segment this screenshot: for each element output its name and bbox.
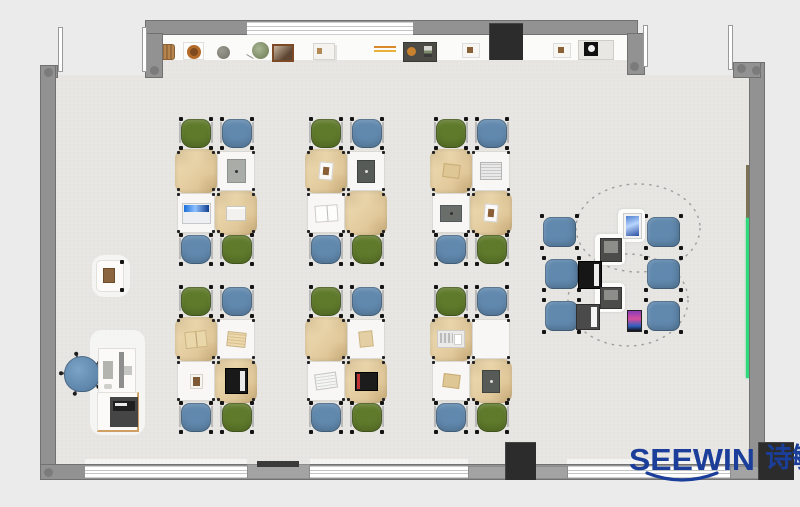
cabinet-top-wall xyxy=(489,23,523,60)
chair-foot xyxy=(220,401,224,405)
desk-foot xyxy=(177,230,180,233)
book-tan-icon xyxy=(442,373,461,389)
desk-foot xyxy=(217,356,220,359)
chair-foot xyxy=(475,401,479,405)
tablet-white-icon xyxy=(623,213,642,239)
pod-4-desk-4 xyxy=(217,361,255,401)
desk-foot xyxy=(432,356,435,359)
desk-foot xyxy=(347,361,350,364)
desk-foot xyxy=(212,398,215,401)
pod-6-chair-green xyxy=(476,402,508,433)
pod-5-chair-green xyxy=(310,286,342,317)
chair-foot xyxy=(380,401,384,405)
chair-foot xyxy=(309,430,313,434)
chair-foot xyxy=(464,430,468,434)
chair-arm xyxy=(211,122,213,143)
laptop-black-icon xyxy=(578,261,602,289)
lectern-podium xyxy=(96,260,124,292)
chair-foot xyxy=(339,285,343,289)
desk-foot xyxy=(472,151,475,154)
chair-arm xyxy=(252,238,254,259)
chair-foot xyxy=(209,233,213,237)
chair-foot xyxy=(250,314,254,318)
desk-foot xyxy=(307,398,310,401)
pod-3-desk-2 xyxy=(472,151,510,191)
pod-3-chair-green xyxy=(476,234,508,265)
stool-foot xyxy=(679,246,683,250)
chair-foot xyxy=(209,401,213,405)
pod-6-desk-4 xyxy=(472,361,510,401)
chair-foot xyxy=(209,262,213,266)
pod-3-chair-blue xyxy=(435,234,467,265)
chair-foot xyxy=(464,117,468,121)
window-top xyxy=(247,22,413,35)
desk-foot xyxy=(472,319,475,322)
desk-foot xyxy=(432,230,435,233)
chair-foot xyxy=(309,117,313,121)
chair-seat xyxy=(436,119,466,148)
desk-foot xyxy=(507,319,510,322)
chair-seat xyxy=(436,287,466,316)
newspaper-icon xyxy=(314,372,338,391)
desk-foot xyxy=(212,151,215,154)
stool-foot xyxy=(542,288,546,292)
chair-foot xyxy=(475,262,479,266)
stool-foot xyxy=(644,288,648,292)
seewin-logo: SEEWIN 诗敏 xyxy=(629,444,800,475)
desk-foot xyxy=(507,356,510,359)
pod-1-chair-blue xyxy=(180,234,212,265)
bottom-wall-trim xyxy=(257,461,299,467)
chair-seat xyxy=(222,235,252,264)
chair-arm xyxy=(475,290,477,311)
chair-foot xyxy=(179,146,183,150)
collab-stool-3 xyxy=(545,301,578,331)
chair-arm xyxy=(507,238,509,259)
wall-joint xyxy=(150,66,159,75)
chair-foot xyxy=(250,285,254,289)
tray-small-icon xyxy=(553,43,571,58)
desk-foot xyxy=(507,230,510,233)
chair-foot xyxy=(209,430,213,434)
chair-foot xyxy=(464,146,468,150)
pencil-tray-icon xyxy=(374,46,396,54)
chair-arm xyxy=(179,290,181,311)
chair-foot xyxy=(464,401,468,405)
chair-arm xyxy=(434,122,436,143)
chair-foot xyxy=(350,146,354,150)
chair-foot xyxy=(250,430,254,434)
desk-foot xyxy=(382,188,385,191)
teacher-chair-seat xyxy=(64,356,100,392)
pod-5-desk-1 xyxy=(307,319,345,359)
pod-1-chair-green xyxy=(180,118,212,149)
chair-foot xyxy=(464,233,468,237)
chair-foot xyxy=(505,430,509,434)
chair-foot xyxy=(434,262,438,266)
pod-5-chair-blue xyxy=(351,286,383,317)
desk-foot xyxy=(382,356,385,359)
desk-foot xyxy=(307,151,310,154)
desk-foot xyxy=(472,398,475,401)
mouse-icon xyxy=(104,384,112,389)
desk-foot xyxy=(217,319,220,322)
chair-foot xyxy=(179,285,183,289)
card-tan-icon xyxy=(358,330,374,347)
chair-foot xyxy=(179,233,183,237)
chair-arm xyxy=(179,122,181,143)
desk-foot xyxy=(467,230,470,233)
chair-seat xyxy=(352,235,382,264)
chair-foot xyxy=(339,262,343,266)
chair-foot xyxy=(209,285,213,289)
chair-foot xyxy=(475,146,479,150)
desk-foot xyxy=(307,193,310,196)
pod-2-desk-2 xyxy=(347,151,385,191)
chair-seat xyxy=(181,287,211,316)
chair-foot xyxy=(220,262,224,266)
desk-foot xyxy=(212,188,215,191)
bowl-ring-icon xyxy=(183,42,204,60)
desk-foot xyxy=(347,356,350,359)
chair-arm xyxy=(220,238,222,259)
device-dark-icon xyxy=(600,287,622,309)
laptop-open-icon xyxy=(182,203,211,224)
chair-arm xyxy=(252,406,254,427)
book-open-icon xyxy=(314,204,338,223)
desk-foot xyxy=(467,151,470,154)
desk-foot xyxy=(472,193,475,196)
desk-foot xyxy=(212,356,215,359)
laptop-dark-icon xyxy=(440,205,462,222)
desk-foot xyxy=(212,230,215,233)
wall-right xyxy=(749,62,765,480)
chair-arm xyxy=(179,238,181,259)
photo-frame-icon xyxy=(272,44,294,62)
chair-foot xyxy=(250,401,254,405)
chair-foot xyxy=(220,314,224,318)
chair-foot xyxy=(475,233,479,237)
wall-joint xyxy=(630,62,639,71)
chair-seat xyxy=(352,403,382,432)
desk-foot xyxy=(252,193,255,196)
card-white-icon xyxy=(318,161,334,180)
pod-1-desk-2 xyxy=(217,151,255,191)
desk-foot xyxy=(177,151,180,154)
pod-4-desk-3 xyxy=(177,361,215,401)
chair-foot xyxy=(350,285,354,289)
chair-arm xyxy=(309,122,311,143)
chair-seat xyxy=(222,403,252,432)
chair-arm xyxy=(382,122,384,143)
floor-plan-canvas: SEEWIN 诗敏 xyxy=(0,0,800,507)
desk-foot xyxy=(347,230,350,233)
chair-foot xyxy=(464,314,468,318)
pod-4-chair-blue xyxy=(180,402,212,433)
door-leaf-top-left-b xyxy=(142,27,147,72)
stool-foot xyxy=(644,298,648,302)
stool-foot xyxy=(575,246,579,250)
desk-foot xyxy=(342,151,345,154)
desk-foot xyxy=(307,188,310,191)
chair-arm xyxy=(220,290,222,311)
desk-foot xyxy=(177,193,180,196)
chair-foot xyxy=(309,262,313,266)
chair-foot xyxy=(339,233,343,237)
pod-2-desk-1 xyxy=(307,151,345,191)
pod-3-chair-blue xyxy=(476,118,508,149)
pod-2-chair-green xyxy=(310,118,342,149)
chair-arm xyxy=(434,290,436,311)
desk-foot xyxy=(507,398,510,401)
desk-foot xyxy=(347,319,350,322)
printer-icon xyxy=(110,397,138,427)
book-striped-icon xyxy=(480,162,502,180)
chair-seat xyxy=(477,287,507,316)
pod-6-chair-blue xyxy=(435,402,467,433)
chair-foot xyxy=(475,117,479,121)
chair-seat xyxy=(181,403,211,432)
pod-6-desk-2 xyxy=(472,319,510,359)
chair-foot xyxy=(380,146,384,150)
chair-arm xyxy=(220,122,222,143)
desk-foot xyxy=(432,193,435,196)
box-stack-icon xyxy=(313,43,335,60)
desk-foot xyxy=(472,230,475,233)
chair-seat xyxy=(311,119,341,148)
coffee-machine-icon xyxy=(578,40,614,60)
chair-foot xyxy=(179,314,183,318)
desk-foot xyxy=(507,361,510,364)
desk-foot xyxy=(252,151,255,154)
chair-arm xyxy=(475,122,477,143)
stool-seat xyxy=(647,259,680,289)
book-white-icon xyxy=(226,206,246,221)
chair-foot xyxy=(505,262,509,266)
desk-foot xyxy=(382,361,385,364)
desk-foot xyxy=(507,188,510,191)
desk-foot xyxy=(467,361,470,364)
chair-foot xyxy=(505,401,509,405)
tablet-dark-icon xyxy=(482,370,500,393)
chair-arm xyxy=(466,122,468,143)
desk-foot xyxy=(217,151,220,154)
window-bottom-middle xyxy=(310,466,468,478)
pod-5-desk-3 xyxy=(307,361,345,401)
art-tray-icon xyxy=(403,42,437,62)
chair-foot xyxy=(339,146,343,150)
chair-arm xyxy=(350,290,352,311)
stool-seat xyxy=(545,259,578,289)
desk-foot xyxy=(212,193,215,196)
desk-foot xyxy=(307,230,310,233)
desk-foot xyxy=(217,361,220,364)
desk-foot xyxy=(382,398,385,401)
stool-foot xyxy=(542,256,546,260)
chair-foot xyxy=(179,401,183,405)
phone-icon xyxy=(627,310,642,332)
desk-foot xyxy=(307,361,310,364)
pod-2-desk-3 xyxy=(307,193,345,233)
chair-seat xyxy=(222,287,252,316)
desk-foot xyxy=(307,356,310,359)
stool-foot xyxy=(644,256,648,260)
keyboard-icon xyxy=(103,361,113,379)
pod-4 xyxy=(177,286,255,433)
chair-seat xyxy=(311,403,341,432)
chair-foot xyxy=(339,401,343,405)
collab-stool-6 xyxy=(647,301,680,331)
pod-1-chair-blue xyxy=(221,118,253,149)
chair-foot xyxy=(434,401,438,405)
desk-foot xyxy=(342,230,345,233)
chair-foot xyxy=(209,146,213,150)
logo-text-cn: 诗敏 xyxy=(765,444,800,472)
chair-foot xyxy=(475,285,479,289)
wall-joint xyxy=(44,468,53,477)
desk-foot xyxy=(467,398,470,401)
chair-foot xyxy=(179,430,183,434)
pod-6-desk-1 xyxy=(432,319,470,359)
chair-foot xyxy=(380,262,384,266)
chair-foot xyxy=(380,233,384,237)
stool-foot xyxy=(679,256,683,260)
desk-foot xyxy=(472,356,475,359)
chair-foot xyxy=(434,285,438,289)
chair-seat xyxy=(436,235,466,264)
desk-foot xyxy=(467,356,470,359)
desk-foot xyxy=(507,151,510,154)
desk-foot xyxy=(217,188,220,191)
pod-2-desk-4 xyxy=(347,193,385,233)
pod-1-desk-3 xyxy=(177,193,215,233)
desk-foot xyxy=(347,193,350,196)
column-bottom-middle xyxy=(505,442,536,480)
desk-foot xyxy=(252,356,255,359)
pod-6-chair-blue xyxy=(476,286,508,317)
stool-seat xyxy=(543,217,576,247)
chair-foot xyxy=(250,233,254,237)
desk-foot xyxy=(432,319,435,322)
chair-foot xyxy=(434,314,438,318)
stool-foot xyxy=(575,214,579,218)
stool-seat xyxy=(647,217,680,247)
chair-foot xyxy=(350,233,354,237)
stool-foot xyxy=(542,330,546,334)
chair-foot xyxy=(505,233,509,237)
pod-2-chair-blue xyxy=(351,118,383,149)
podium-foot xyxy=(120,288,124,292)
plant-green-icon xyxy=(252,42,269,59)
chair-arm xyxy=(475,406,477,427)
wall-joint xyxy=(737,64,746,73)
chair-foot xyxy=(505,314,509,318)
desk-cloth-cover xyxy=(305,317,347,361)
stool-foot xyxy=(679,288,683,292)
pod-6-chair-green xyxy=(435,286,467,317)
desk-foot xyxy=(252,361,255,364)
desk-foot xyxy=(177,319,180,322)
chair-arm xyxy=(466,238,468,259)
stool-foot xyxy=(679,298,683,302)
laptop-red-icon xyxy=(355,372,378,391)
chair-arm xyxy=(350,238,352,259)
collab-stool-2 xyxy=(545,259,578,289)
photo-icon xyxy=(190,374,203,389)
chair-arm xyxy=(350,122,352,143)
chair-seat xyxy=(181,119,211,148)
chair-arm xyxy=(507,290,509,311)
pod-4-chair-green xyxy=(180,286,212,317)
tablet-gray-icon xyxy=(227,159,246,183)
chair-seat xyxy=(352,287,382,316)
chair-foot xyxy=(220,285,224,289)
chair-foot xyxy=(505,146,509,150)
door-leaf-top-left-a xyxy=(58,27,63,72)
chair-foot xyxy=(350,314,354,318)
desk-foot xyxy=(467,319,470,322)
pod-5 xyxy=(307,286,385,433)
desk-foot xyxy=(347,398,350,401)
chair-arm xyxy=(341,122,343,143)
chair-foot xyxy=(220,430,224,434)
stool-foot xyxy=(577,298,581,302)
chair-foot xyxy=(339,117,343,121)
stool-seat xyxy=(647,301,680,331)
desk-foot xyxy=(467,188,470,191)
keyboard-icon xyxy=(437,330,465,348)
chair-foot xyxy=(434,430,438,434)
stool-foot xyxy=(577,256,581,260)
chair-arm xyxy=(382,290,384,311)
pod-5-desk-4 xyxy=(347,361,385,401)
pod-1-chair-green xyxy=(221,234,253,265)
pod-4-chair-blue xyxy=(221,286,253,317)
desk-foot xyxy=(252,319,255,322)
pod-3-chair-green xyxy=(435,118,467,149)
chair-foot xyxy=(380,314,384,318)
chair-foot xyxy=(505,117,509,121)
chair-seat xyxy=(477,119,507,148)
chair-arm xyxy=(309,406,311,427)
chair-arm xyxy=(434,406,436,427)
desk-foot xyxy=(177,361,180,364)
chair-arm xyxy=(434,238,436,259)
door-leaf-top-right-b xyxy=(728,25,733,70)
desk-foot xyxy=(342,188,345,191)
chair-foot xyxy=(209,117,213,121)
device-dark-icon xyxy=(600,238,622,262)
chair-foot xyxy=(380,117,384,121)
door-leaf-top-right-a xyxy=(643,25,648,67)
chair-foot xyxy=(339,314,343,318)
chair-foot xyxy=(350,430,354,434)
chair-foot xyxy=(179,262,183,266)
chair-foot xyxy=(220,117,224,121)
desk-foot xyxy=(217,230,220,233)
collab-stool-1 xyxy=(543,217,576,247)
pod-1-desk-1 xyxy=(177,151,215,191)
chair-foot xyxy=(309,314,313,318)
chair-arm xyxy=(507,122,509,143)
stool-foot xyxy=(644,246,648,250)
desk-foot xyxy=(252,230,255,233)
chair-foot xyxy=(350,262,354,266)
chair-arm xyxy=(382,406,384,427)
card-white-icon xyxy=(483,203,499,222)
pod-6 xyxy=(432,286,510,433)
stool-foot xyxy=(679,330,683,334)
